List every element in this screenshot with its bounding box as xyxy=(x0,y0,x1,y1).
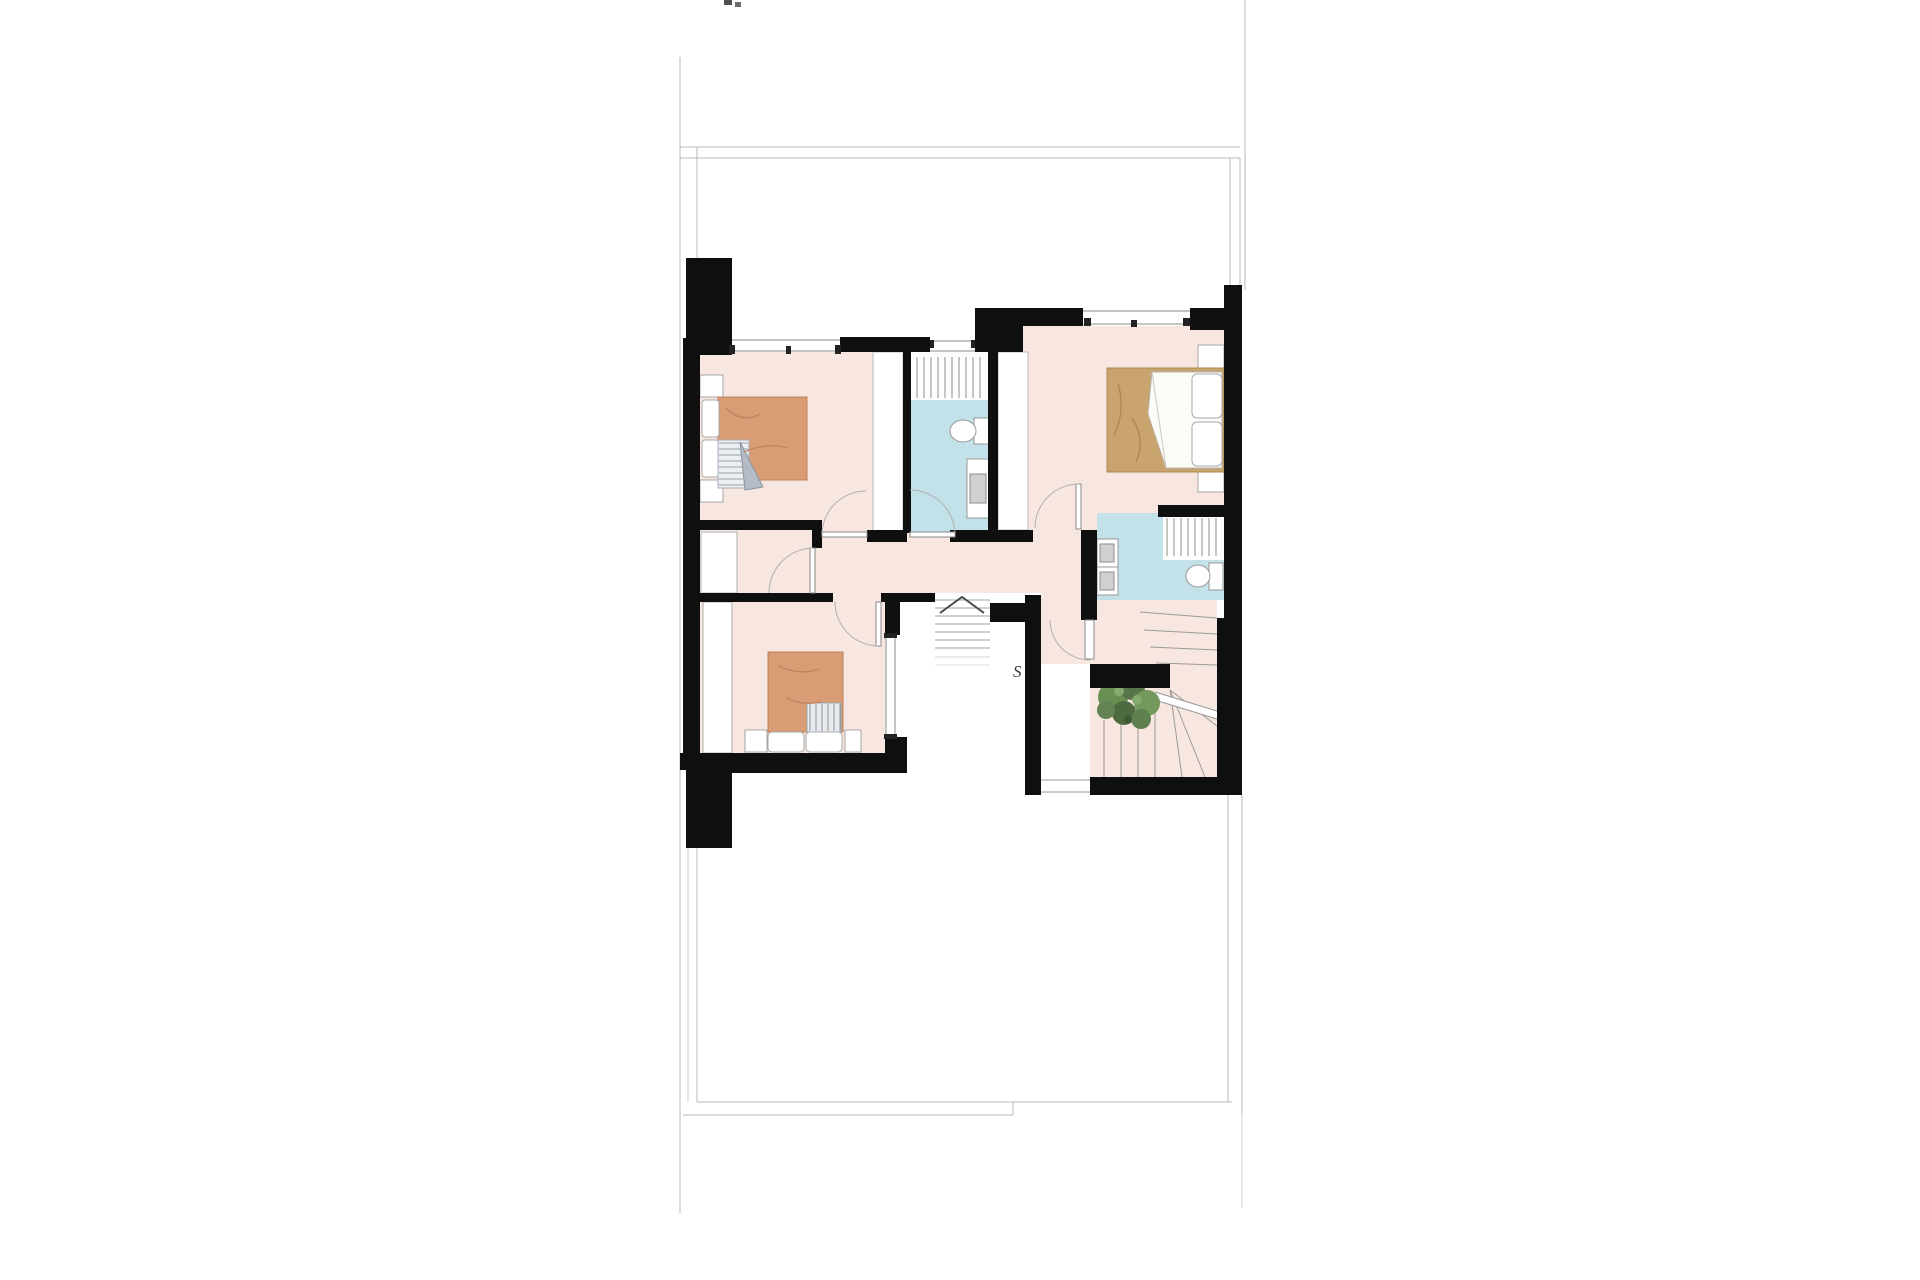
wall-top-right-run xyxy=(993,308,1083,326)
wardrobe-small-room xyxy=(701,532,737,593)
window-bed1-jamb-3 xyxy=(835,345,841,354)
window-bed2-jamb-2 xyxy=(1131,320,1137,327)
floor-plan-drawing: S xyxy=(0,0,1920,1280)
blanket-bed3 xyxy=(807,703,841,732)
sink-center xyxy=(970,474,986,503)
wall-bottom xyxy=(680,753,890,770)
nightstand-bed1-top xyxy=(700,375,723,397)
toilet-right-tank xyxy=(1209,563,1223,590)
window-bed3-jamb-1 xyxy=(884,633,897,638)
wall-corridor-bottom-right xyxy=(881,593,935,602)
wall-corridor-bottom-left xyxy=(698,593,833,602)
wall-bottom-thin xyxy=(732,770,907,773)
pillow-bed2-bottom xyxy=(1192,422,1222,466)
stair-flight-upper-bg xyxy=(935,593,990,653)
window-bath-jamb-2 xyxy=(971,340,975,348)
floor-corridor-door-gap xyxy=(833,593,881,602)
wall-smallroom-jamb xyxy=(812,520,822,548)
nightstand-bed2-bottom xyxy=(1198,470,1224,492)
toilet-right-bowl xyxy=(1186,565,1210,587)
pillow-bed3-left xyxy=(768,732,804,752)
wall-bath-center-left xyxy=(903,352,911,533)
door-bath-center-leaf xyxy=(910,532,955,537)
pillow-bed1-top xyxy=(702,400,719,437)
door-smallroom-leaf xyxy=(810,548,815,593)
floor-plan-canvas: S xyxy=(0,0,1920,1280)
sink-right-lower xyxy=(1100,572,1114,590)
door-bed2-leaf xyxy=(1076,484,1081,529)
toilet-center-bowl xyxy=(950,420,976,442)
stair-label: S xyxy=(1013,662,1022,681)
wall-top-corner-left xyxy=(683,338,732,355)
nightstand-bed3-right xyxy=(845,730,861,752)
plant-shadow-1 xyxy=(1124,715,1132,723)
wall-stair-left xyxy=(1025,595,1041,795)
closet-strip-left xyxy=(873,352,903,533)
floor-bath-center-shower xyxy=(911,352,988,402)
edge-artifact-2 xyxy=(735,2,741,7)
wall-pillar-topleft xyxy=(686,258,732,338)
nightstand-bed3-left xyxy=(745,730,767,752)
pillow-bed1-bottom xyxy=(702,440,719,477)
door-bed1-leaf xyxy=(822,532,867,537)
door-stair-leaf xyxy=(1085,620,1094,659)
wall-stair-bottom xyxy=(1090,777,1242,795)
wall-top-right-corner xyxy=(1190,308,1227,330)
plant-highlight-2 xyxy=(1132,695,1142,705)
wall-hall-right xyxy=(1081,530,1097,620)
window-bed2-jamb-1 xyxy=(1084,318,1091,326)
wall-smallroom-top xyxy=(698,520,817,530)
closet-strip-right xyxy=(998,352,1028,530)
window-bed3-jamb-2 xyxy=(884,734,897,739)
window-bed2-jamb-3 xyxy=(1183,318,1190,326)
wall-left xyxy=(683,338,700,753)
plant-leaf-5 xyxy=(1131,709,1151,729)
sink-right-upper xyxy=(1100,544,1114,562)
wall-corridor-top-left xyxy=(867,530,907,542)
wall-stair-inner xyxy=(1090,664,1170,688)
wall-pillar-bottomleft xyxy=(686,770,732,848)
edge-artifact-1 xyxy=(724,0,732,5)
wall-stair-stub xyxy=(990,603,1025,622)
pillow-bed3-right xyxy=(806,732,842,752)
window-bed1-jamb-1 xyxy=(729,345,735,354)
wall-top-mid xyxy=(840,337,930,352)
wardrobe-bottomleft xyxy=(703,602,732,753)
door-bed3-leaf xyxy=(876,602,881,646)
window-bath-jamb-1 xyxy=(930,340,934,348)
pillow-bed2-top xyxy=(1192,374,1222,418)
wall-right-upper xyxy=(1224,285,1242,618)
plant-leaf-6 xyxy=(1097,701,1115,719)
wall-bedroom2-bottom xyxy=(1158,505,1225,517)
wall-bath-center-right xyxy=(988,352,998,533)
nightstand-bed2-top xyxy=(1198,345,1224,368)
wall-right-lower xyxy=(1217,618,1242,795)
floor-bath-right-shower xyxy=(1163,513,1224,560)
wall-bedroom3-right-upper xyxy=(885,602,900,635)
window-bed1-jamb-2 xyxy=(786,346,791,354)
